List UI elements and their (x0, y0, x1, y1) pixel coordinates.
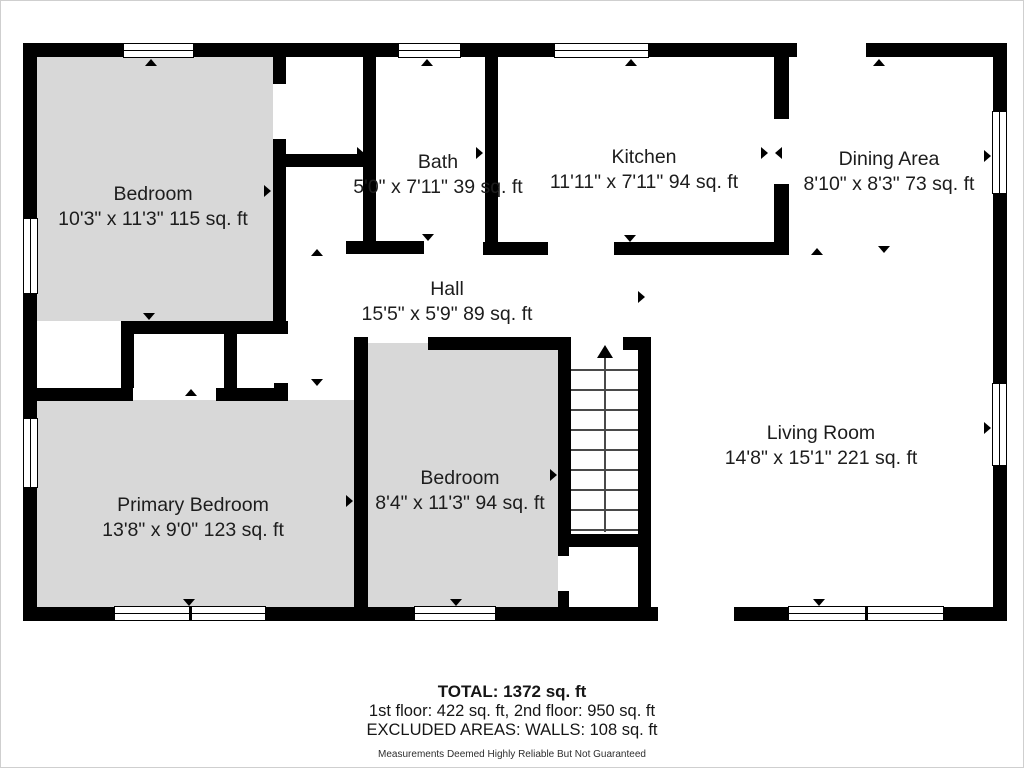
room-label-bedroom-2: Bedroom 8'4" x 11'3" 94 sq. ft (375, 466, 544, 516)
door-arrow-icon (624, 235, 636, 242)
door-arrow-icon (421, 59, 433, 66)
disclaimer-text: Measurements Deemed Highly Reliable But … (1, 749, 1023, 760)
total-area-text: TOTAL: 1372 sq. ft (1, 682, 1023, 702)
room-name: Dining Area (804, 147, 975, 172)
room-label-bath: Bath 5'0" x 7'11" 39 sq. ft (353, 150, 522, 200)
room-name: Primary Bedroom (102, 493, 284, 518)
window (414, 606, 496, 621)
door-arrow-icon (145, 59, 157, 66)
window (992, 383, 1007, 466)
wall (121, 321, 288, 334)
door-arrow-icon (625, 59, 637, 66)
wall (346, 241, 424, 254)
room-name: Living Room (725, 421, 918, 446)
wall (558, 534, 651, 547)
room-label-kitchen: Kitchen 11'11" x 7'11" 94 sq. ft (550, 145, 738, 195)
room-name: Bedroom (58, 182, 248, 207)
wall (216, 388, 288, 401)
room-label-primary-bedroom: Primary Bedroom 13'8" x 9'0" 123 sq. ft (102, 493, 284, 543)
room-label-hall: Hall 15'5" x 5'9" 89 sq. ft (362, 277, 533, 327)
wall (273, 139, 286, 324)
room-label-dining-area: Dining Area 8'10" x 8'3" 73 sq. ft (804, 147, 975, 197)
room-name: Hall (362, 277, 533, 302)
window (23, 418, 38, 488)
door-arrow-icon (452, 342, 464, 349)
wall (286, 154, 363, 167)
room-dimensions: 8'4" x 11'3" 94 sq. ft (375, 491, 544, 516)
window (554, 43, 649, 58)
door-arrow-icon (450, 599, 462, 606)
door-arrow-icon (873, 59, 885, 66)
room-dimensions: 5'0" x 7'11" 39 sq. ft (353, 175, 522, 200)
door-arrow-icon (183, 599, 195, 606)
door-arrow-icon (264, 185, 271, 197)
door-arrow-icon (811, 248, 823, 255)
wall (428, 337, 571, 350)
door-arrow-icon (878, 246, 890, 253)
stairs (571, 351, 638, 534)
wall (558, 337, 571, 547)
room-dimensions: 11'11" x 7'11" 94 sq. ft (550, 170, 738, 195)
door-arrow-icon (813, 599, 825, 606)
room-dimensions: 8'10" x 8'3" 73 sq. ft (804, 172, 975, 197)
excluded-areas-text: EXCLUDED AREAS: WALLS: 108 sq. ft (1, 721, 1023, 740)
door-arrow-icon (346, 495, 353, 507)
floor-plan-page: Bedroom 10'3" x 11'3" 115 sq. ft Bath 5'… (0, 0, 1024, 768)
door-arrow-icon (311, 249, 323, 256)
door-arrow-icon (761, 147, 768, 159)
room-dimensions: 13'8" x 9'0" 123 sq. ft (102, 518, 284, 543)
wall (224, 321, 237, 388)
door-arrow-icon (143, 313, 155, 320)
door-arrow-icon (28, 495, 35, 507)
wall (354, 337, 368, 607)
wall (483, 242, 548, 255)
wall (638, 337, 651, 547)
stairs-direction-line (604, 355, 606, 532)
door-arrow-icon (28, 187, 35, 199)
wall (273, 57, 286, 84)
floor-areas-text: 1st floor: 422 sq. ft, 2nd floor: 950 sq… (1, 702, 1023, 721)
wall (866, 43, 1007, 57)
door-arrow-icon (644, 425, 651, 437)
wall (37, 388, 133, 401)
door-arrow-icon (638, 291, 645, 303)
room-name: Kitchen (550, 145, 738, 170)
area-summary: TOTAL: 1372 sq. ft 1st floor: 422 sq. ft… (1, 682, 1023, 760)
wall (558, 547, 569, 556)
wall (23, 43, 37, 621)
room-dimensions: 10'3" x 11'3" 115 sq. ft (58, 207, 248, 232)
window (398, 43, 461, 58)
wall (558, 591, 569, 607)
stairs-up-arrow-icon (597, 345, 613, 358)
room-label-bedroom-1: Bedroom 10'3" x 11'3" 115 sq. ft (58, 182, 248, 232)
window (992, 111, 1007, 194)
door-arrow-icon (422, 234, 434, 241)
window (23, 218, 38, 294)
room-name: Bedroom (375, 466, 544, 491)
window (123, 43, 194, 58)
room-dimensions: 14'8" x 15'1" 221 sq. ft (725, 446, 918, 471)
wall (121, 321, 134, 388)
room-name: Bath (353, 150, 522, 175)
room-label-living-room: Living Room 14'8" x 15'1" 221 sq. ft (725, 421, 918, 471)
door-arrow-icon (550, 469, 557, 481)
window-double (788, 606, 944, 621)
door-arrow-icon (775, 147, 782, 159)
wall (774, 57, 789, 119)
door-arrow-icon (984, 422, 991, 434)
wall (638, 547, 651, 607)
room-dimensions: 15'5" x 5'9" 89 sq. ft (362, 302, 533, 327)
door-arrow-icon (185, 389, 197, 396)
door-arrow-icon (984, 150, 991, 162)
wall (614, 242, 789, 255)
window-double (114, 606, 266, 621)
door-arrow-icon (311, 379, 323, 386)
